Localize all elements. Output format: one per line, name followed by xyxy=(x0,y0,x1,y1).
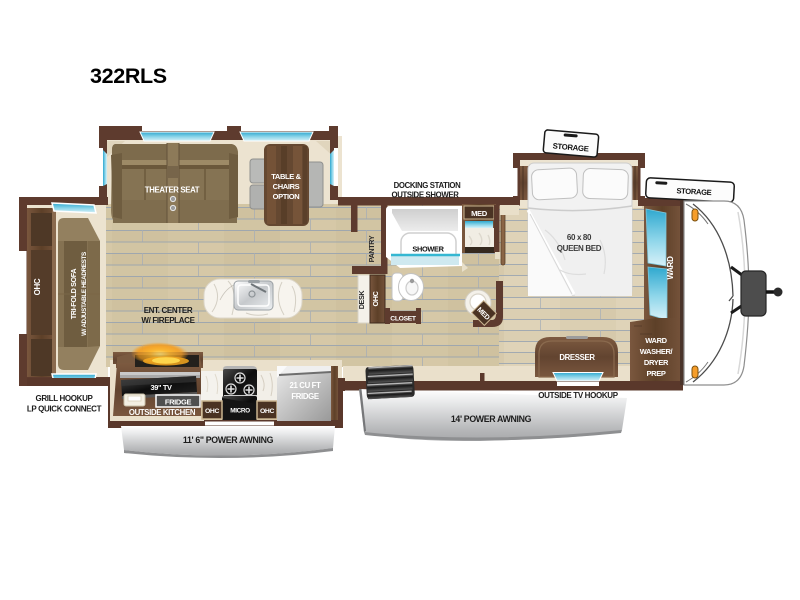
svg-text:11' 6" POWER AWNING: 11' 6" POWER AWNING xyxy=(183,435,274,445)
svg-text:WARD: WARD xyxy=(666,256,675,280)
svg-text:GRILL HOOKUP: GRILL HOOKUP xyxy=(36,394,94,403)
svg-text:60 x 80: 60 x 80 xyxy=(567,233,592,242)
svg-text:OHC: OHC xyxy=(371,291,380,306)
svg-text:21 CU FT: 21 CU FT xyxy=(290,381,322,390)
svg-text:THEATER SEAT: THEATER SEAT xyxy=(145,186,200,195)
svg-text:W/ FIREPLACE: W/ FIREPLACE xyxy=(141,316,195,325)
svg-text:MICRO: MICRO xyxy=(230,408,250,415)
svg-text:DESK: DESK xyxy=(357,290,366,310)
svg-text:ENT. CENTER: ENT. CENTER xyxy=(144,306,193,315)
svg-text:STORAGE: STORAGE xyxy=(676,186,712,197)
svg-text:39" TV: 39" TV xyxy=(150,383,172,392)
svg-text:WARD: WARD xyxy=(645,336,667,345)
svg-text:CHAIRS: CHAIRS xyxy=(273,182,300,191)
svg-text:FRIDGE: FRIDGE xyxy=(291,392,319,401)
svg-text:OPTION: OPTION xyxy=(273,192,300,201)
svg-text:W/ ADJUSTABLE HEADRESTS: W/ ADJUSTABLE HEADRESTS xyxy=(81,252,88,336)
svg-text:14' POWER AWNING: 14' POWER AWNING xyxy=(451,414,532,424)
svg-text:QUEEN BED: QUEEN BED xyxy=(557,244,602,253)
svg-text:SHOWER: SHOWER xyxy=(412,245,444,254)
svg-text:PREP: PREP xyxy=(646,369,665,378)
svg-text:DRYER: DRYER xyxy=(644,358,669,367)
svg-text:OHC: OHC xyxy=(260,408,274,415)
svg-text:PANTRY: PANTRY xyxy=(367,235,376,262)
svg-text:OUTSIDE SHOWER: OUTSIDE SHOWER xyxy=(391,191,459,200)
svg-text:LP QUICK CONNECT: LP QUICK CONNECT xyxy=(27,405,102,414)
svg-text:OHC: OHC xyxy=(33,278,42,295)
svg-text:TRI-FOLD SOFA: TRI-FOLD SOFA xyxy=(69,269,78,320)
svg-text:CLOSET: CLOSET xyxy=(390,316,417,323)
svg-text:OHC: OHC xyxy=(205,408,219,415)
svg-text:DOCKING STATION: DOCKING STATION xyxy=(394,181,462,190)
svg-text:DRESSER: DRESSER xyxy=(559,353,595,362)
svg-text:WASHER/: WASHER/ xyxy=(640,347,674,356)
svg-text:MED: MED xyxy=(471,209,488,218)
svg-text:OUTSIDE KITCHEN: OUTSIDE KITCHEN xyxy=(129,408,196,417)
svg-text:FRIDGE: FRIDGE xyxy=(165,398,192,407)
svg-text:322RLS: 322RLS xyxy=(90,64,167,88)
svg-text:OUTSIDE TV HOOKUP: OUTSIDE TV HOOKUP xyxy=(538,391,618,400)
svg-text:TABLE &: TABLE & xyxy=(271,172,301,181)
